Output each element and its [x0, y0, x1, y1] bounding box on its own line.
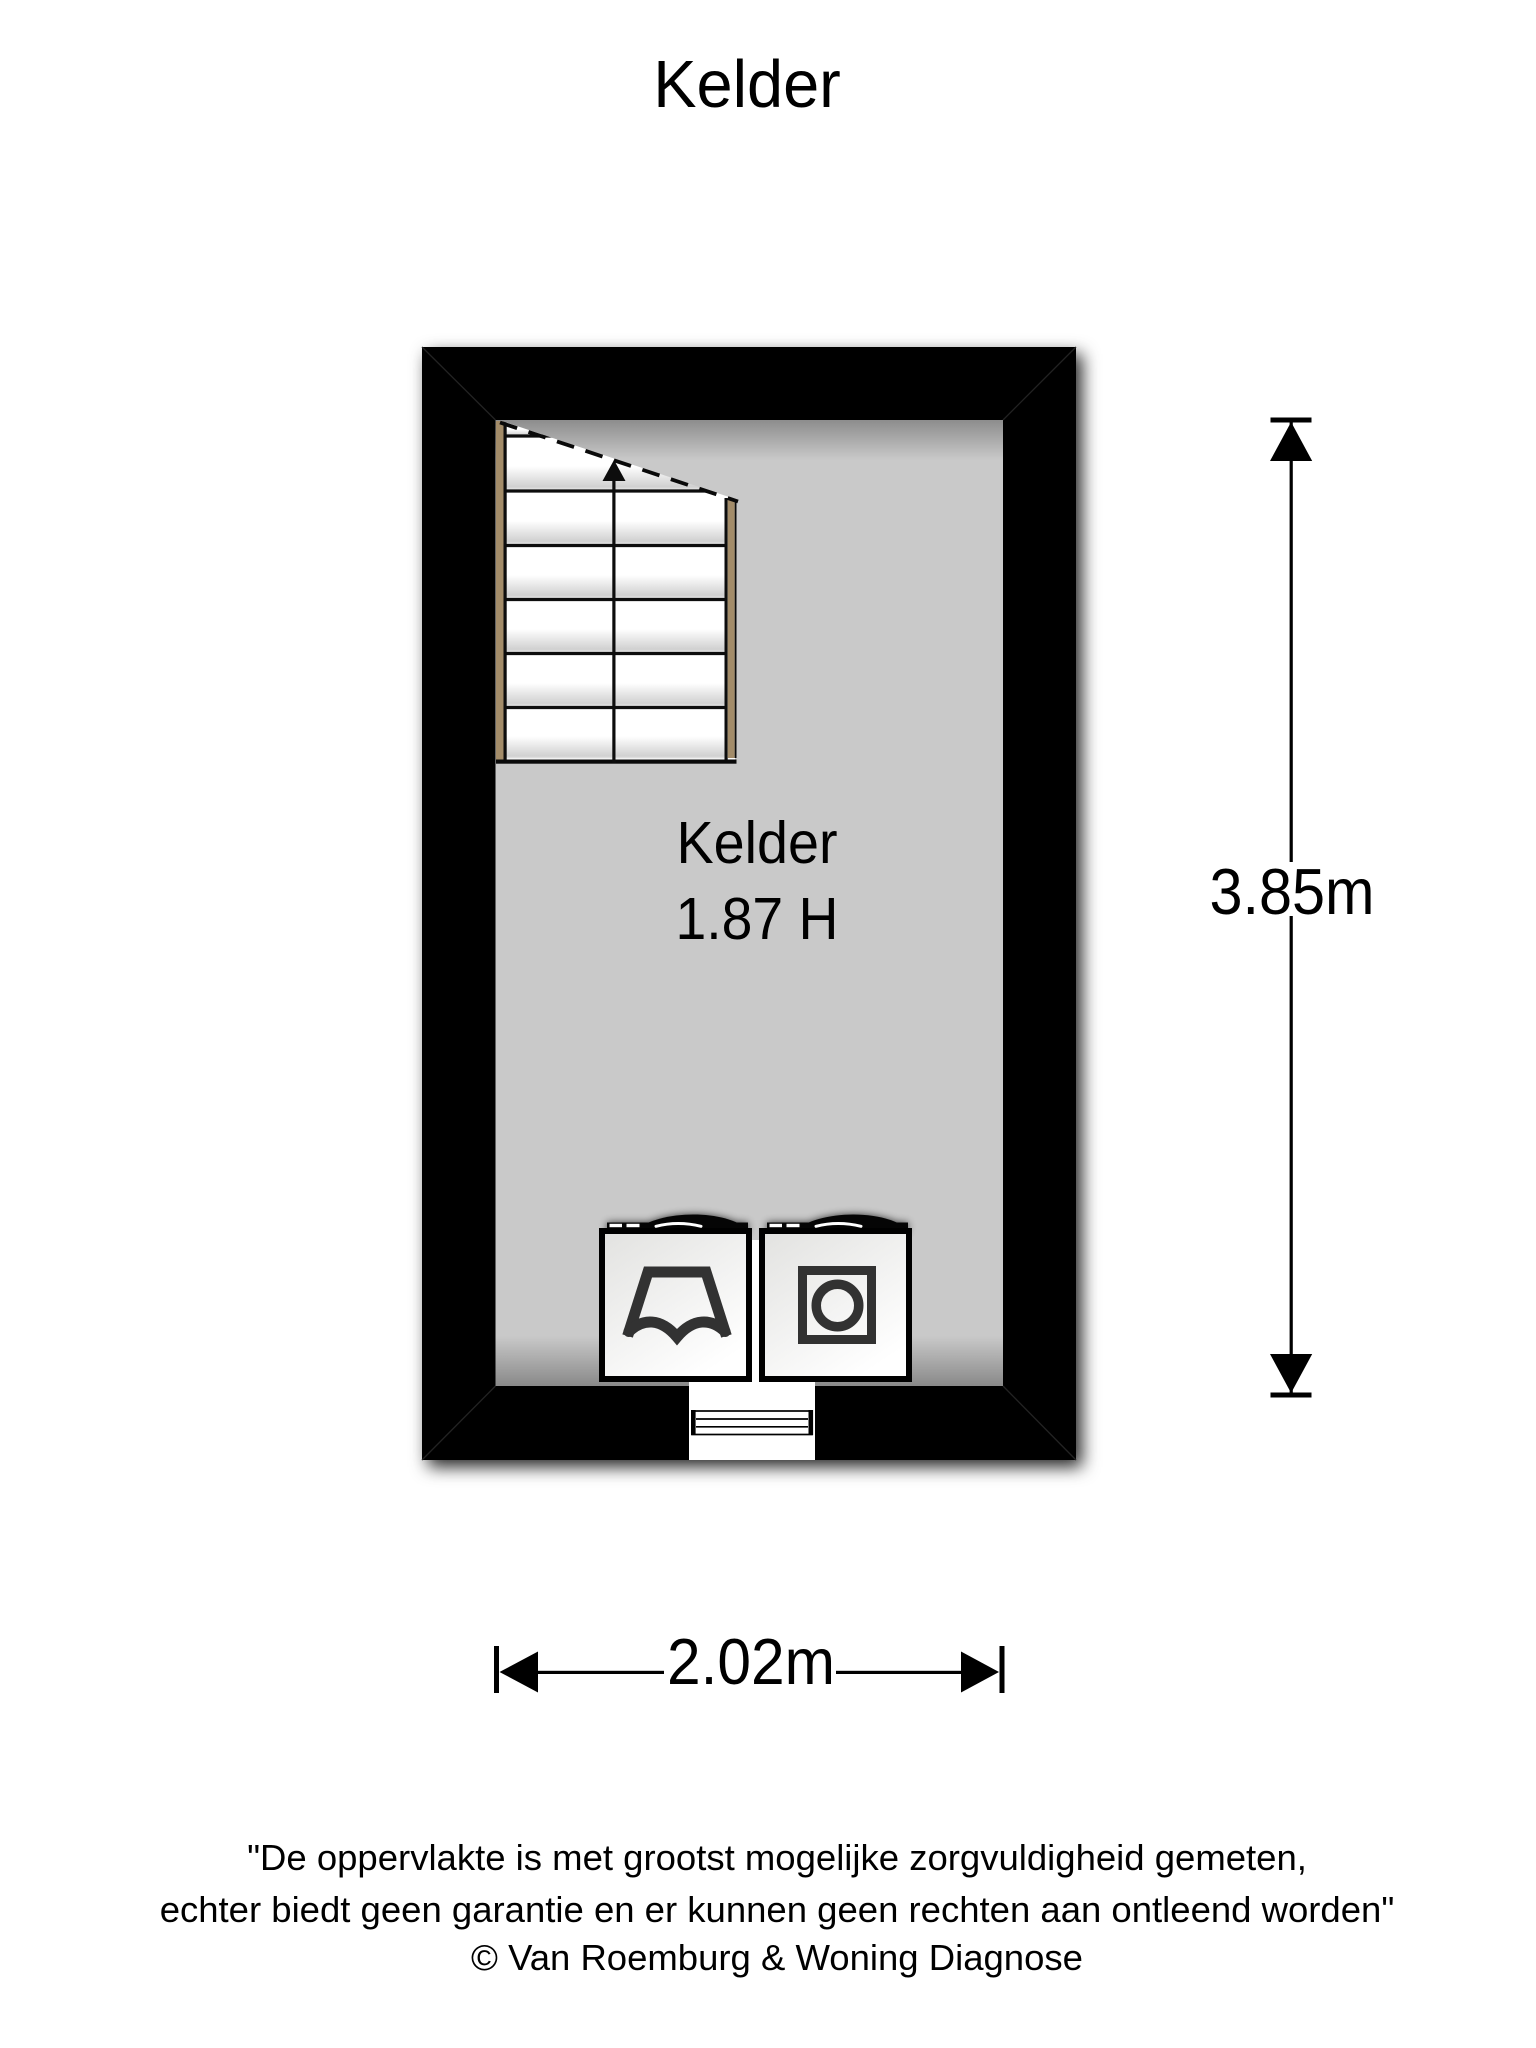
svg-text:Kelder: Kelder [677, 809, 838, 876]
svg-text:© Van Roemburg & Woning Diagno: © Van Roemburg & Woning Diagnose [471, 1937, 1083, 1978]
svg-text:Kelder: Kelder [653, 48, 841, 122]
svg-text:3.85m: 3.85m [1210, 855, 1375, 928]
svg-text:echter biedt geen garantie en: echter biedt geen garantie en er kunnen … [160, 1889, 1395, 1930]
svg-text:1.87 H: 1.87 H [676, 885, 839, 952]
svg-text:"De oppervlakte is met grootst: "De oppervlakte is met grootst mogelijke… [247, 1837, 1307, 1878]
svg-text:2.02m: 2.02m [667, 1625, 835, 1698]
